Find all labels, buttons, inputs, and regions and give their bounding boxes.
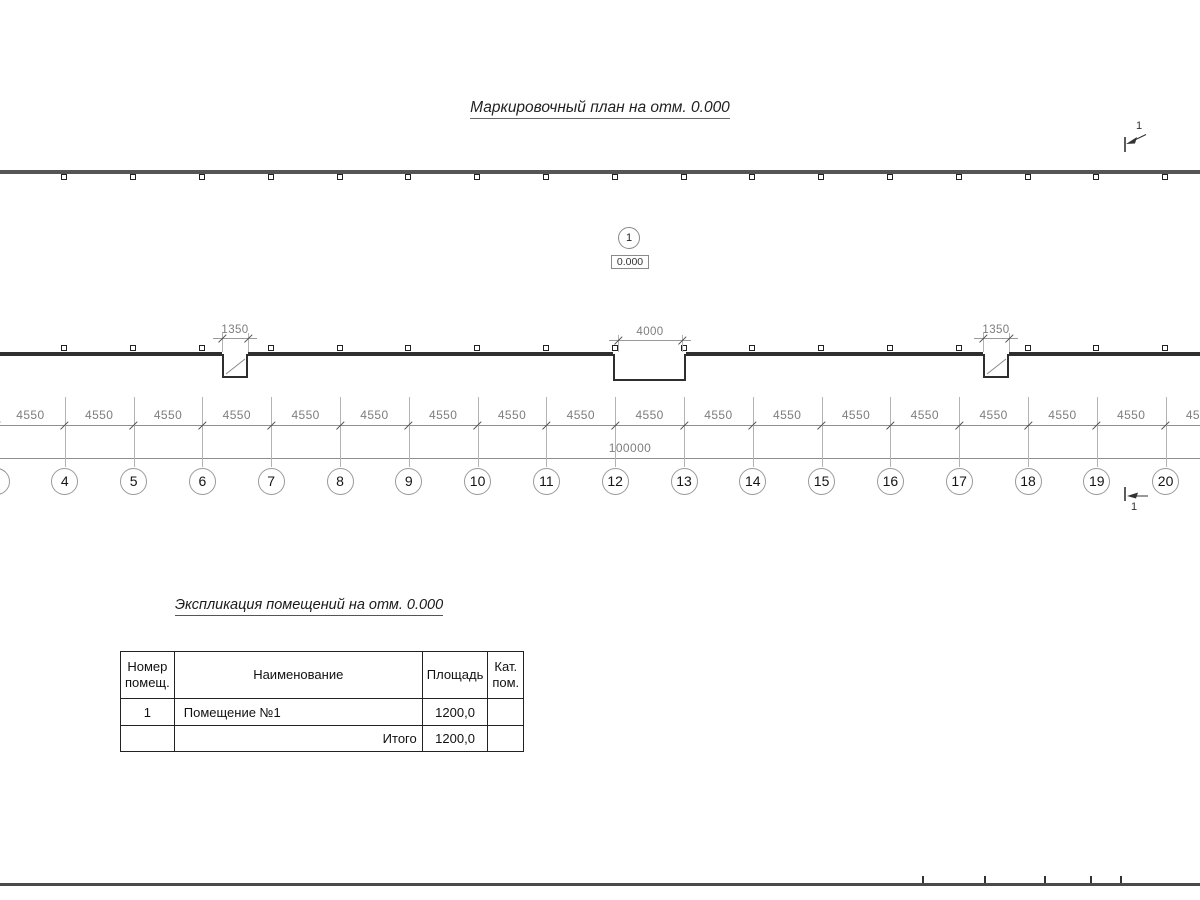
grid-bubble-label: 8 [336, 473, 344, 489]
wall-column-marker [130, 345, 136, 351]
grid-axis-line [753, 397, 754, 467]
cell-room-name: Помещение №1 [174, 699, 422, 726]
grid-bubble: 12 [602, 468, 629, 495]
wall-column-marker [474, 174, 480, 180]
grid-bubble-label: 18 [1020, 473, 1036, 489]
wall-column-marker [337, 345, 343, 351]
opening-dimension-label: 1350 [982, 324, 1009, 336]
door-leaf-lines [0, 0, 1200, 900]
bay-dimension-label: 4550 [704, 408, 732, 422]
bay-dimension-label: 4550 [291, 408, 319, 422]
bottom-wall-tick [1090, 876, 1092, 883]
cell-empty [488, 726, 524, 752]
wall-column-marker [956, 345, 962, 351]
schedule-title: Экспликация помещений на отм. 0.000 [175, 597, 443, 613]
wall-column-marker [818, 174, 824, 180]
grid-bubble: 6 [189, 468, 216, 495]
bottom-wall-tick [922, 876, 924, 883]
grid-axis-line [478, 397, 479, 467]
cell-room-category [488, 699, 524, 726]
wall-column-marker [749, 345, 755, 351]
wall-column-marker [749, 174, 755, 180]
bay-dimension-label: 4550 [1117, 408, 1145, 422]
header-name: Наименование [174, 652, 422, 699]
grid-bubble: 18 [1015, 468, 1042, 495]
opening-dimension-line [609, 340, 691, 341]
wall-column-marker [612, 174, 618, 180]
bay-dimension-label: 4550 [154, 408, 182, 422]
header-room-number: Номерпомещ. [121, 652, 175, 699]
wall-column-marker [1093, 174, 1099, 180]
grid-bubble-label: 12 [607, 473, 623, 489]
grid-bubble: 14 [739, 468, 766, 495]
wall-column-marker [1025, 174, 1031, 180]
bay-dimension-label: 4550 [1186, 408, 1200, 422]
bay-dimension-label: 4550 [223, 408, 251, 422]
grid-axis-line [684, 397, 685, 467]
wall-column-marker [337, 174, 343, 180]
grid-axis-line [615, 397, 616, 467]
grid-axis-line [65, 397, 66, 467]
grid-bubble: 15 [808, 468, 835, 495]
grid-axis-line [959, 397, 960, 467]
grid-axis-line [271, 397, 272, 467]
grid-axis-line [409, 397, 410, 467]
grid-bubble-label: 15 [814, 473, 830, 489]
grid-axis-line [1166, 397, 1167, 467]
bay-dimension-label: 4550 [773, 408, 801, 422]
schedule-total-row: Итого 1200,0 [121, 726, 524, 752]
bay-dimension-label: 4550 [567, 408, 595, 422]
dimension-line-total [0, 458, 1200, 459]
wall-column-marker [543, 345, 549, 351]
bottom-wall-tick [1044, 876, 1046, 883]
grid-bubble-label: 11 [539, 473, 554, 489]
wall-column-marker [199, 345, 205, 351]
wall-column-marker [61, 174, 67, 180]
grid-bubble-label: 19 [1089, 473, 1105, 489]
grid-bubble: 11 [533, 468, 560, 495]
wall-column-marker [887, 345, 893, 351]
wall-column-marker [612, 345, 618, 351]
grid-bubble: 19 [1083, 468, 1110, 495]
bay-dimension-label: 4550 [635, 408, 663, 422]
grid-bubble-label: 20 [1158, 473, 1174, 489]
wall-column-marker [61, 345, 67, 351]
wall-column-marker [268, 174, 274, 180]
bay-dimension-label: 4550 [429, 408, 457, 422]
bottom-wall-tick [984, 876, 986, 883]
grid-bubble: 20 [1152, 468, 1179, 495]
grid-axis-line [890, 397, 891, 467]
opening-dimension-label: 4000 [636, 326, 663, 338]
grid-axis-line [1097, 397, 1098, 467]
bottom-wall-tick [1120, 876, 1122, 883]
wall-column-marker [405, 174, 411, 180]
wall-column-marker [268, 345, 274, 351]
grid-bubble-label: 4 [61, 473, 69, 489]
total-value: 1200,0 [422, 726, 488, 752]
wall-column-marker [1093, 345, 1099, 351]
bay-dimension-label: 4550 [16, 408, 44, 422]
schedule-header-row: Номерпомещ. Наименование Площадь Кат.пом… [121, 652, 524, 699]
grid-axis-line [340, 397, 341, 467]
grid-bubble: 17 [946, 468, 973, 495]
cell-room-number: 1 [121, 699, 175, 726]
bay-dimension-label: 4550 [979, 408, 1007, 422]
wall-column-marker [681, 174, 687, 180]
grid-bubble: 5 [120, 468, 147, 495]
bay-dimension-label: 4550 [85, 408, 113, 422]
grid-bubble: 16 [877, 468, 904, 495]
wall-column-marker [199, 174, 205, 180]
header-area: Площадь [422, 652, 488, 699]
grid-bubble: 7 [258, 468, 285, 495]
grid-axis-line [134, 397, 135, 467]
wall-column-marker [474, 345, 480, 351]
grid-bubble-label: 6 [198, 473, 206, 489]
grid-bubble: 4 [51, 468, 78, 495]
bay-dimension-label: 4550 [911, 408, 939, 422]
bottom-wall [0, 883, 1200, 886]
grid-bubble-label: 16 [883, 473, 899, 489]
grid-bubble-label: 9 [405, 473, 413, 489]
grid-axis-line [1028, 397, 1029, 467]
grid-axis-line [546, 397, 547, 467]
bay-dimension-label: 4550 [360, 408, 388, 422]
wall-column-marker [956, 174, 962, 180]
bay-dimension-label: 4550 [842, 408, 870, 422]
grid-bubble: 9 [395, 468, 422, 495]
grid-bubble: 10 [464, 468, 491, 495]
wall-column-marker [1162, 174, 1168, 180]
grid-bubble-label: 14 [745, 473, 761, 489]
opening-dimension-label: 1350 [221, 324, 248, 336]
schedule-row: 1 Помещение №1 1200,0 [121, 699, 524, 726]
grid-bubble-label: 17 [951, 473, 967, 489]
grid-bubble-label: 13 [676, 473, 692, 489]
wall-column-marker [887, 174, 893, 180]
grid-bubble-label: 5 [130, 473, 138, 489]
grid-bubble-label: 7 [267, 473, 275, 489]
drawing-sheet: Маркировочный план на отм. 0.000 1 1 0.0… [0, 0, 1200, 900]
grid-axis-line [822, 397, 823, 467]
header-category: Кат.пом. [488, 652, 524, 699]
bay-dimension-label: 4550 [498, 408, 526, 422]
dimension-line-bays [0, 425, 1200, 426]
section-mark-bottom-label: 1 [1131, 501, 1137, 513]
grid-bubble: 13 [671, 468, 698, 495]
wall-column-marker [405, 345, 411, 351]
total-label: Итого [174, 726, 422, 752]
schedule-table: Номерпомещ. Наименование Площадь Кат.пом… [120, 651, 524, 752]
bay-dimension-label: 4550 [1048, 408, 1076, 422]
grid-axis-line [202, 397, 203, 467]
wall-column-marker [130, 174, 136, 180]
wall-column-marker [1162, 345, 1168, 351]
wall-column-marker [543, 174, 549, 180]
grid-bubble-label: 10 [470, 473, 486, 489]
wall-column-marker [818, 345, 824, 351]
wall-column-marker [1025, 345, 1031, 351]
cell-room-area: 1200,0 [422, 699, 488, 726]
grid-bubble: 8 [327, 468, 354, 495]
cell-empty [121, 726, 175, 752]
